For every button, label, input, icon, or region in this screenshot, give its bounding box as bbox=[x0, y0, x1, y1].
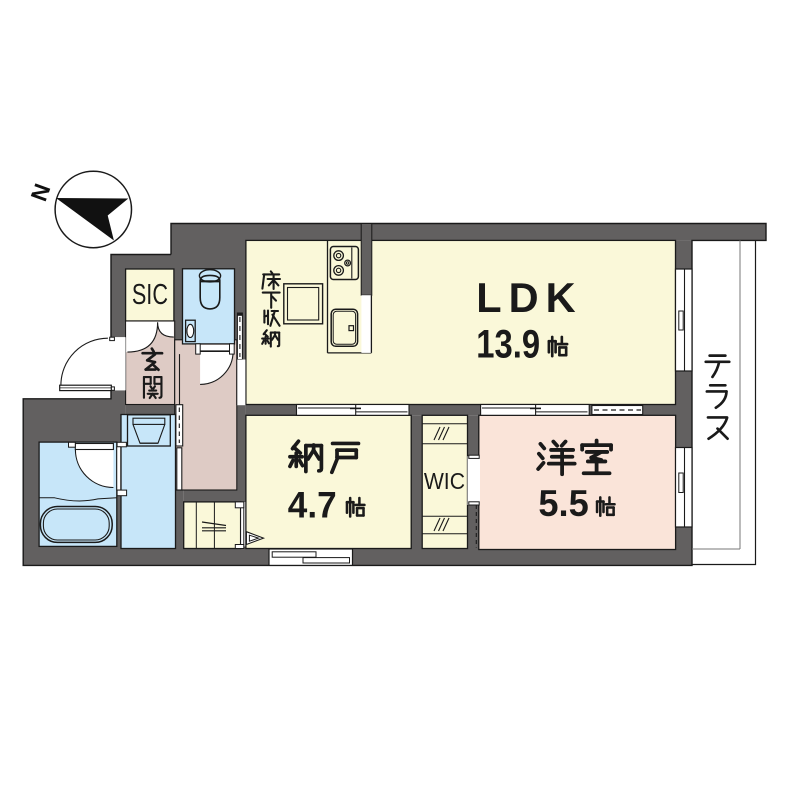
svg-text:13.9: 13.9 bbox=[476, 321, 540, 366]
svg-text:N: N bbox=[25, 180, 55, 205]
svg-text:4.7: 4.7 bbox=[288, 485, 337, 526]
svg-text:WIC: WIC bbox=[424, 468, 465, 494]
svg-text:SIC: SIC bbox=[132, 279, 168, 311]
svg-text:LDK: LDK bbox=[476, 274, 582, 321]
svg-text:5.5: 5.5 bbox=[538, 483, 588, 524]
